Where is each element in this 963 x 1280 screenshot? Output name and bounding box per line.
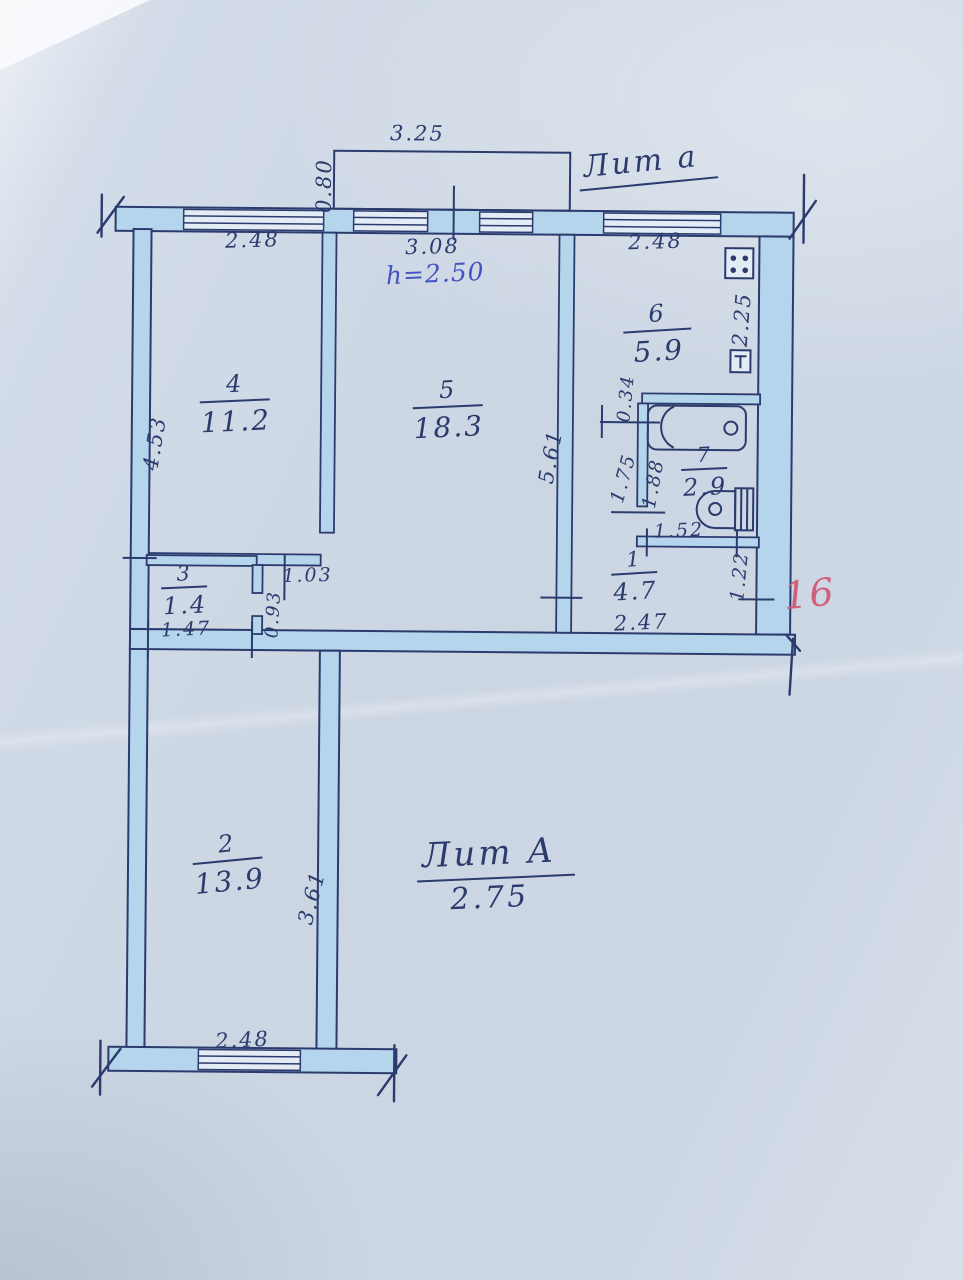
room-1-label: 1 4.7 xyxy=(610,546,660,607)
room-7-area: 2.9 xyxy=(681,469,729,502)
floorplan-drawing xyxy=(0,0,963,1280)
room-1-number: 1 xyxy=(610,546,658,576)
dim-top-window-left: 2.48 xyxy=(225,227,280,252)
ceiling-height-note: h=2.50 xyxy=(385,257,485,290)
boiler-icon xyxy=(730,350,750,372)
floorplan: 4 11.2 5 18.3 6 5.9 7 2.9 1 4.7 3 1.4 2 … xyxy=(0,0,963,1280)
dim-kitchen-side: 2.25 xyxy=(728,291,756,347)
dim-hall-width: 2.47 xyxy=(613,609,669,635)
building-height: 2.75 xyxy=(450,879,530,917)
room-4-area: 11.2 xyxy=(200,400,272,439)
window-room5-right xyxy=(480,212,533,232)
building-letter-main: Лит А xyxy=(415,830,575,883)
plot-number: 16 xyxy=(781,569,837,618)
stove-icon xyxy=(725,248,753,278)
balcony-outline xyxy=(334,151,570,211)
dim-closet-width: 1.47 xyxy=(160,617,211,641)
dim-balcony-width: 3.25 xyxy=(390,121,445,145)
room-7-label: 7 2.9 xyxy=(680,442,729,502)
scanned-floorplan-page: 4 11.2 5 18.3 6 5.9 7 2.9 1 4.7 3 1.4 2 … xyxy=(0,0,963,1280)
window-room2 xyxy=(198,1050,300,1071)
dim-room4-door: 1.03 xyxy=(282,564,333,587)
room-3-label: 3 1.4 xyxy=(160,560,209,620)
room-6-number: 6 xyxy=(622,298,692,334)
room-4-number: 4 xyxy=(198,368,270,403)
dim-closet-side: 0.93 xyxy=(261,590,285,639)
exterior-walls xyxy=(108,207,799,1077)
window-room5-left xyxy=(354,211,428,232)
room-7-number: 7 xyxy=(680,442,728,471)
room-5-number: 5 xyxy=(411,374,483,409)
room-1-area: 4.7 xyxy=(611,573,659,607)
room-5-label: 5 18.3 xyxy=(411,374,484,445)
room-4-label: 4 11.2 xyxy=(198,368,271,439)
dim-bathroom-width: 1.52 xyxy=(653,519,704,543)
dim-balcony-depth: 0.80 xyxy=(312,158,336,213)
dim-top-window-right: 2.48 xyxy=(628,229,683,254)
dim-room2-window: 2.48 xyxy=(215,1027,271,1053)
room-5-area: 18.3 xyxy=(413,406,485,445)
room-6-label: 6 5.9 xyxy=(622,298,694,370)
room-6-area: 5.9 xyxy=(623,329,693,369)
room-3-area: 1.4 xyxy=(161,587,209,620)
room-2-area: 13.9 xyxy=(193,858,266,901)
room-3-number: 3 xyxy=(160,560,208,589)
dim-top-window-center: 3.08 xyxy=(405,234,460,259)
room-2-label: 2 13.9 xyxy=(190,827,267,901)
